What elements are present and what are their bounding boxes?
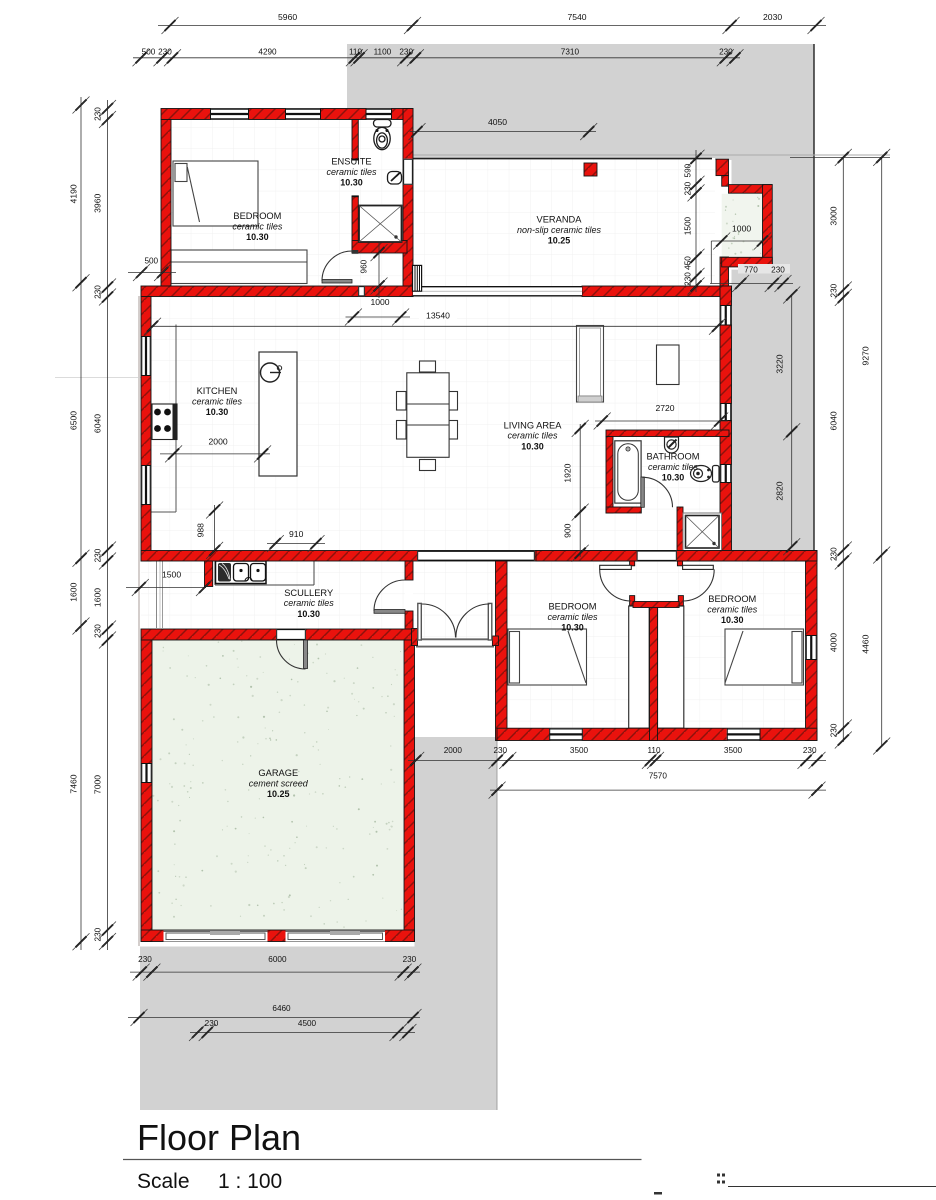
- svg-text:ceramic tiles: ceramic tiles: [192, 396, 243, 406]
- svg-text:4050: 4050: [488, 117, 507, 127]
- svg-text:230: 230: [771, 265, 785, 274]
- svg-text:230: 230: [684, 181, 693, 195]
- svg-text:3500: 3500: [724, 746, 743, 755]
- svg-text:LIVING AREA: LIVING AREA: [504, 420, 563, 430]
- svg-text:6040: 6040: [93, 414, 103, 433]
- svg-text:ceramic tiles: ceramic tiles: [284, 598, 335, 608]
- svg-text:VERANDA: VERANDA: [537, 215, 583, 225]
- svg-text:BEDROOM: BEDROOM: [548, 602, 596, 612]
- svg-text:230: 230: [399, 48, 413, 57]
- svg-text:SCULLERY: SCULLERY: [284, 588, 333, 598]
- svg-text:7460: 7460: [69, 774, 79, 793]
- svg-text:3500: 3500: [570, 746, 589, 755]
- svg-text:910: 910: [289, 529, 304, 539]
- svg-text:1500: 1500: [162, 570, 181, 580]
- svg-text:10.25: 10.25: [267, 789, 290, 799]
- svg-text:KITCHEN: KITCHEN: [197, 386, 238, 396]
- svg-text:10.30: 10.30: [206, 407, 229, 417]
- svg-text:4190: 4190: [69, 184, 79, 203]
- svg-text:BEDROOM: BEDROOM: [708, 594, 756, 604]
- svg-text:230: 230: [205, 1019, 219, 1028]
- svg-text:ceramic tiles: ceramic tiles: [707, 605, 758, 615]
- svg-text:BEDROOM: BEDROOM: [233, 211, 281, 221]
- svg-text:1600: 1600: [69, 582, 79, 601]
- svg-text:10.30: 10.30: [246, 232, 269, 242]
- svg-text:230: 230: [803, 746, 817, 755]
- svg-text:230: 230: [138, 955, 152, 964]
- svg-text:230: 230: [830, 547, 839, 561]
- svg-text:1600: 1600: [93, 588, 103, 607]
- svg-text:500: 500: [142, 48, 156, 57]
- svg-text:2820: 2820: [775, 481, 785, 500]
- svg-text:230: 230: [94, 624, 103, 638]
- svg-text:10.30: 10.30: [340, 178, 363, 188]
- svg-text:230: 230: [94, 927, 103, 941]
- svg-text:13540: 13540: [426, 311, 450, 321]
- svg-text:Floor Plan: Floor Plan: [137, 1117, 301, 1158]
- svg-text:1920: 1920: [563, 463, 573, 482]
- svg-text:1100: 1100: [374, 48, 392, 57]
- svg-text:2720: 2720: [655, 403, 674, 413]
- svg-text:ENSUITE: ENSUITE: [331, 157, 371, 167]
- svg-text:6040: 6040: [829, 411, 839, 430]
- svg-text:3960: 3960: [93, 194, 103, 213]
- svg-text:4000: 4000: [829, 633, 839, 652]
- svg-text:1500: 1500: [684, 216, 693, 235]
- svg-text:7000: 7000: [93, 775, 103, 794]
- svg-text:230: 230: [719, 48, 733, 57]
- svg-text:6500: 6500: [69, 411, 79, 430]
- svg-text:4500: 4500: [298, 1019, 317, 1028]
- svg-text:10.30: 10.30: [297, 609, 320, 619]
- svg-text:9270: 9270: [861, 346, 871, 365]
- svg-text:10.30: 10.30: [561, 623, 584, 633]
- svg-text:2000: 2000: [209, 437, 228, 447]
- svg-text:1 : 100: 1 : 100: [218, 1170, 282, 1193]
- svg-text:230: 230: [830, 723, 839, 737]
- svg-text:Scale: Scale: [137, 1170, 190, 1193]
- svg-text:GARAGE: GARAGE: [258, 768, 298, 778]
- svg-text:7310: 7310: [561, 48, 580, 57]
- svg-text:770: 770: [744, 265, 758, 274]
- svg-text:ceramic tiles: ceramic tiles: [648, 462, 699, 472]
- svg-text:230: 230: [94, 285, 103, 299]
- svg-text:900: 900: [563, 523, 573, 538]
- svg-text:10.30: 10.30: [721, 615, 744, 625]
- svg-text:2030: 2030: [763, 12, 782, 22]
- svg-text:non-slip ceramic tiles: non-slip ceramic tiles: [517, 225, 602, 235]
- svg-text:500: 500: [144, 256, 158, 265]
- svg-text:230: 230: [684, 272, 693, 286]
- svg-text:450: 450: [684, 256, 693, 270]
- svg-text:10.25: 10.25: [548, 236, 571, 246]
- svg-text:230: 230: [94, 107, 103, 121]
- svg-text:230: 230: [158, 48, 172, 57]
- svg-text:4290: 4290: [258, 48, 277, 57]
- svg-text:7570: 7570: [649, 771, 668, 780]
- svg-text:4460: 4460: [861, 634, 871, 653]
- svg-text:3000: 3000: [829, 206, 839, 225]
- svg-text:230: 230: [493, 746, 507, 755]
- svg-text:230: 230: [403, 955, 417, 964]
- svg-text:3220: 3220: [775, 354, 785, 373]
- svg-text:ceramic tiles: ceramic tiles: [326, 167, 377, 177]
- svg-text:230: 230: [94, 548, 103, 562]
- svg-text:110: 110: [349, 48, 362, 57]
- svg-text:5960: 5960: [278, 12, 297, 22]
- svg-text:960: 960: [360, 259, 369, 273]
- svg-text:590: 590: [684, 163, 693, 177]
- svg-text:1000: 1000: [370, 297, 389, 307]
- svg-text:cement screed: cement screed: [249, 779, 309, 789]
- svg-text:1000: 1000: [732, 223, 751, 233]
- svg-text:230: 230: [830, 283, 839, 297]
- svg-text:10.30: 10.30: [521, 441, 544, 451]
- svg-text:6460: 6460: [272, 1004, 291, 1013]
- svg-text:110: 110: [647, 746, 660, 755]
- svg-text:ceramic tiles: ceramic tiles: [547, 612, 598, 622]
- svg-text:10.30: 10.30: [662, 473, 685, 483]
- svg-text:BATHROOM: BATHROOM: [646, 452, 699, 462]
- svg-text:988: 988: [196, 523, 206, 538]
- svg-text:6000: 6000: [268, 955, 287, 964]
- svg-text:ceramic tiles: ceramic tiles: [507, 431, 558, 441]
- svg-text:2000: 2000: [444, 746, 463, 755]
- svg-text:ceramic tiles: ceramic tiles: [232, 221, 283, 231]
- svg-text:7540: 7540: [567, 12, 586, 22]
